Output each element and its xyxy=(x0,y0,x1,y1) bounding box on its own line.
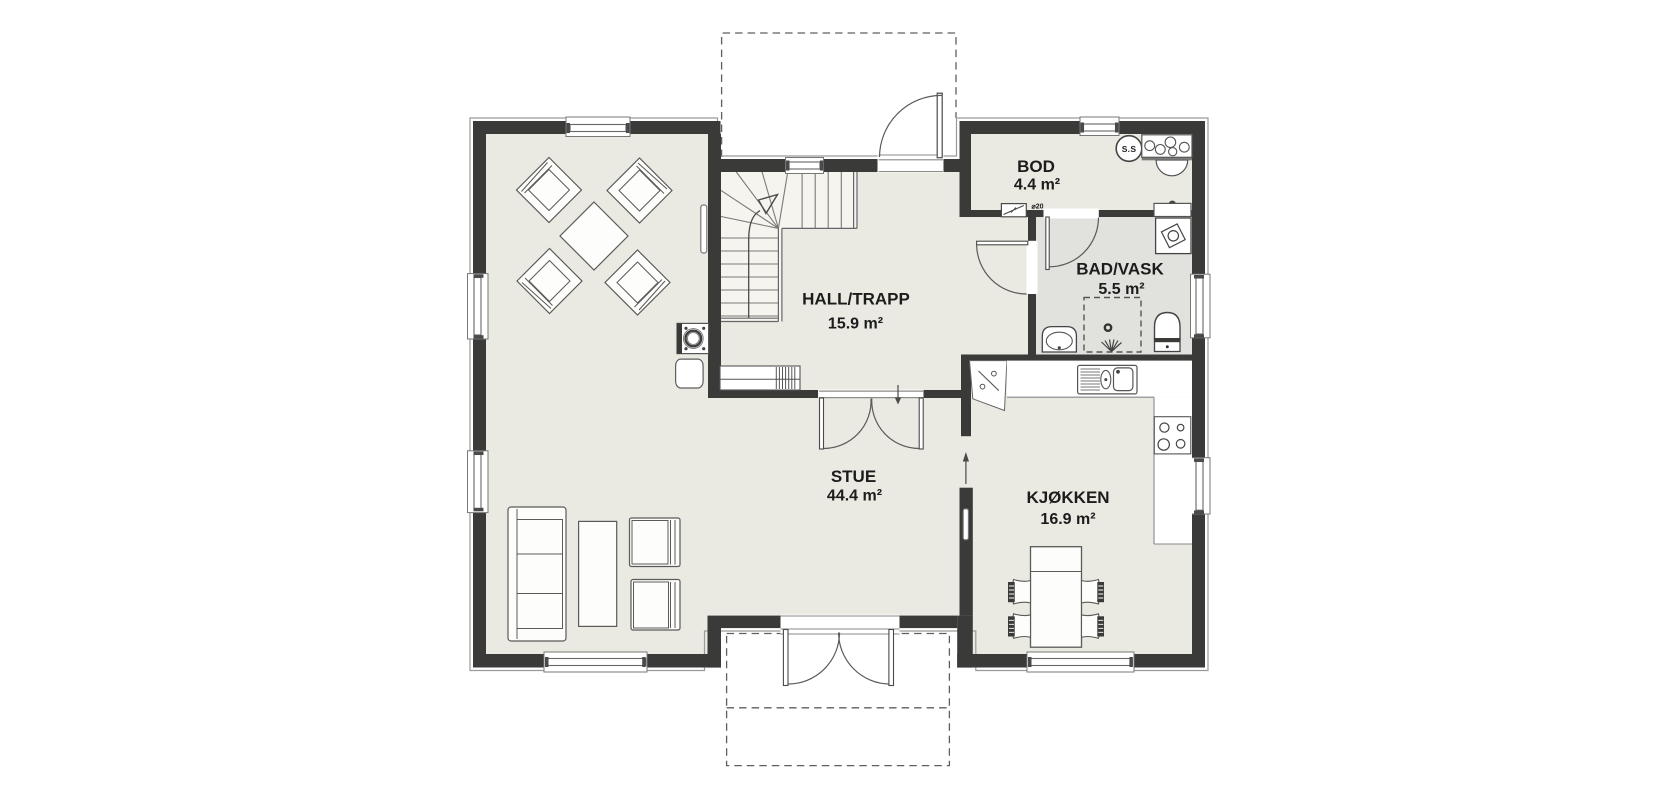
svg-text:16.9 m²: 16.9 m² xyxy=(1040,511,1095,528)
svg-text:S.S: S.S xyxy=(1122,144,1137,154)
svg-text:15.9 m²: 15.9 m² xyxy=(828,316,883,333)
svg-text:HALL/TRAPP: HALL/TRAPP xyxy=(802,290,910,309)
svg-text:BOD: BOD xyxy=(1017,157,1055,176)
svg-text:4.4 m²: 4.4 m² xyxy=(1014,177,1060,194)
svg-text:STUE: STUE xyxy=(831,467,876,486)
svg-text:KJØKKEN: KJØKKEN xyxy=(1026,488,1109,507)
svg-text:5.5 m²: 5.5 m² xyxy=(1098,281,1144,298)
svg-text:44.4 m²: 44.4 m² xyxy=(827,488,882,505)
svg-text:BAD/VASK: BAD/VASK xyxy=(1076,260,1164,279)
svg-text:⌀20: ⌀20 xyxy=(1031,204,1043,211)
